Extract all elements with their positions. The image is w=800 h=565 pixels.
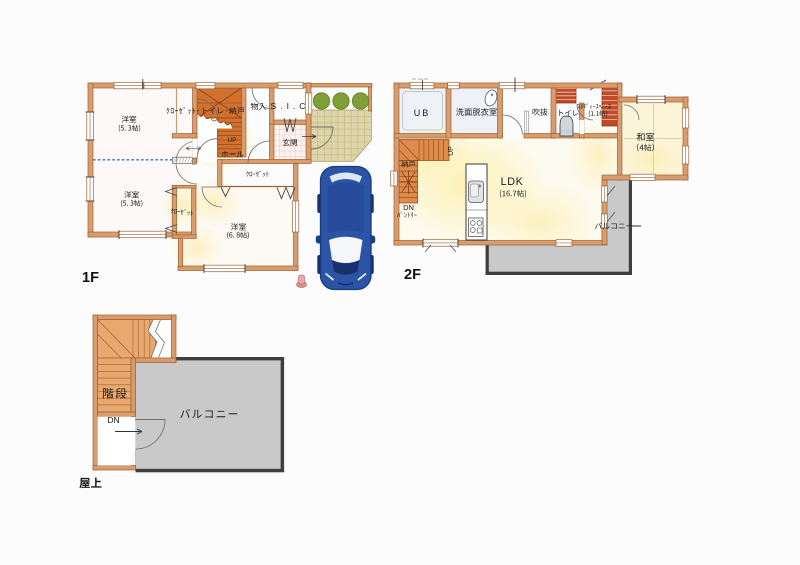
svg-text:S.I.C: S.I.C [271, 101, 310, 111]
svg-text:UB: UB [414, 108, 431, 118]
svg-text:DN: DN [107, 415, 119, 425]
svg-text:LDK: LDK [501, 176, 524, 188]
svg-text:1F: 1F [82, 270, 99, 286]
svg-text:DN: DN [403, 203, 414, 212]
svg-text:UP: UP [448, 146, 455, 156]
svg-text:UP: UP [227, 137, 236, 144]
svg-text:2F: 2F [404, 267, 421, 283]
